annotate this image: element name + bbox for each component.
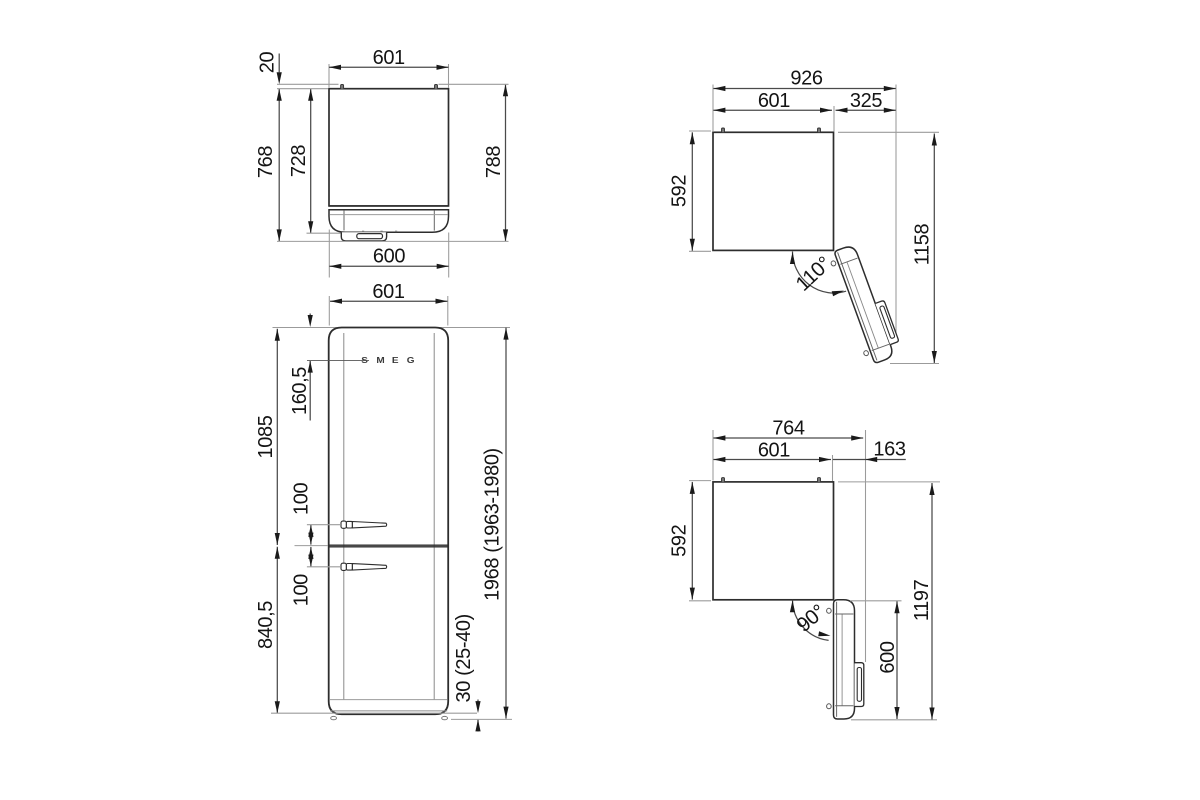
svg-text:325: 325 [850, 90, 882, 112]
svg-text:1085: 1085 [255, 415, 277, 458]
svg-text:601: 601 [373, 47, 405, 69]
svg-text:100: 100 [290, 574, 312, 606]
svg-text:601: 601 [372, 281, 404, 303]
svg-text:592: 592 [669, 175, 691, 207]
svg-text:E: E [392, 356, 399, 365]
svg-text:160,5: 160,5 [289, 367, 311, 415]
svg-text:788: 788 [483, 146, 505, 178]
svg-text:601: 601 [758, 90, 790, 112]
svg-text:M: M [376, 356, 384, 365]
svg-text:1158: 1158 [912, 224, 934, 266]
svg-text:840,5: 840,5 [255, 601, 277, 649]
svg-text:592: 592 [669, 524, 691, 556]
svg-text:163: 163 [873, 439, 905, 461]
svg-text:601: 601 [758, 439, 790, 461]
svg-text:1197: 1197 [911, 579, 933, 621]
svg-text:20: 20 [257, 52, 279, 74]
svg-text:30 (25-40): 30 (25-40) [453, 614, 475, 702]
svg-text:764: 764 [772, 418, 804, 440]
svg-text:100: 100 [290, 483, 312, 515]
svg-text:926: 926 [790, 68, 822, 90]
svg-text:728: 728 [288, 145, 310, 177]
svg-text:768: 768 [255, 146, 277, 178]
svg-text:600: 600 [877, 641, 899, 673]
svg-text:G: G [407, 356, 415, 365]
svg-text:600: 600 [373, 246, 405, 268]
svg-text:1968 (1963-1980): 1968 (1963-1980) [482, 448, 504, 601]
